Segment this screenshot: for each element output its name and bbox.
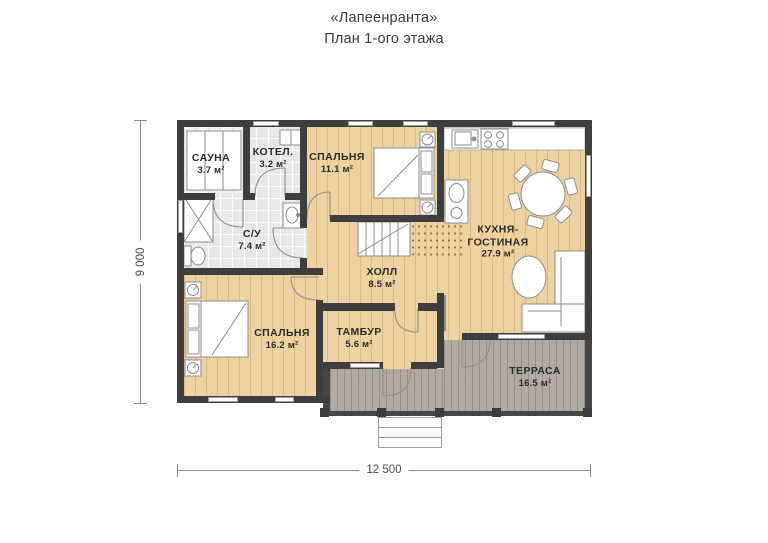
wall-bathroom-right-upper bbox=[300, 193, 307, 228]
dimension-tick bbox=[134, 403, 147, 404]
room-label-boiler: КОТЕЛ. 3.2 м² bbox=[253, 146, 294, 170]
dimension-tick bbox=[590, 464, 591, 477]
wall-bedroom2-bottom bbox=[177, 396, 330, 403]
window-bedroom2 bbox=[275, 397, 294, 402]
room-label-vestibule: ТАМБУР 5.6 м² bbox=[336, 326, 381, 350]
room-label-bathroom: С/У 7.4 м² bbox=[238, 228, 265, 252]
room-label-kitchen-living: КУХНЯ-ГОСТИНАЯ 27.9 м² bbox=[452, 224, 544, 261]
terrace-edge-bottom bbox=[323, 411, 592, 416]
plan-title: «Лапеенранта» План 1-ого этажа bbox=[0, 8, 768, 49]
terrace-post bbox=[377, 408, 386, 417]
wall-bedroom1-bottom bbox=[330, 215, 437, 222]
dimension-tick bbox=[177, 464, 178, 477]
dimension-width-label: 12 500 bbox=[359, 463, 408, 477]
room-label-sauna: САУНА 3.7 м² bbox=[192, 152, 230, 176]
room-label-bedroom2: СПАЛЬНЯ 16.2 м² bbox=[254, 327, 310, 351]
wall-boiler-bottom bbox=[243, 193, 255, 200]
window-bedroom1 bbox=[403, 121, 428, 126]
room-label-bedroom1: СПАЛЬНЯ 11.1 м² bbox=[309, 151, 365, 175]
terrace-deck-left bbox=[330, 369, 444, 411]
house-name: «Лапеенранта» bbox=[0, 8, 768, 29]
terrace-post bbox=[492, 408, 501, 417]
window-kitchen-right bbox=[586, 155, 591, 197]
wall-vestibule-bottom bbox=[411, 362, 437, 369]
wall-vestibule-kitchen bbox=[437, 293, 444, 368]
wall-hall-vestibule bbox=[323, 303, 395, 311]
entrance-step bbox=[378, 437, 442, 448]
wall-bedroom2-right bbox=[316, 300, 323, 396]
room-label-hall: ХОЛЛ 8.5 м² bbox=[367, 266, 398, 290]
dimension-height-label: 9 000 bbox=[134, 241, 148, 284]
wall-sauna-bottom bbox=[184, 193, 215, 200]
wall-hall-vestibule bbox=[418, 303, 437, 311]
window-bathroom bbox=[178, 200, 183, 233]
terrace-post bbox=[435, 408, 444, 417]
room-label-terrace: ТЕРРАСА 16.5 м² bbox=[509, 365, 561, 389]
wall-boiler-bedroom1 bbox=[300, 127, 307, 193]
plan-subtitle: План 1-ого этажа bbox=[0, 29, 768, 50]
window-kitchen-terrace bbox=[498, 334, 545, 339]
wall-exterior-left bbox=[177, 120, 184, 403]
dimension-tick bbox=[134, 120, 147, 121]
wall-sauna-boiler bbox=[243, 127, 250, 193]
floor-plan-page: «Лапеенранта» План 1-ого этажа bbox=[0, 0, 768, 543]
window-boiler bbox=[253, 121, 279, 126]
terrace-post bbox=[320, 408, 329, 417]
terrace-edge-right bbox=[585, 340, 592, 416]
window-kitchen-top bbox=[512, 121, 555, 126]
wall-exterior-right bbox=[585, 120, 592, 340]
wall-bathroom-bottom bbox=[184, 268, 323, 275]
terrace-post bbox=[583, 408, 592, 417]
window-vestibule bbox=[350, 363, 380, 368]
window-bedroom1 bbox=[348, 121, 373, 126]
wall-bedroom1-kitchen bbox=[437, 127, 444, 222]
window-bedroom2 bbox=[208, 397, 238, 402]
